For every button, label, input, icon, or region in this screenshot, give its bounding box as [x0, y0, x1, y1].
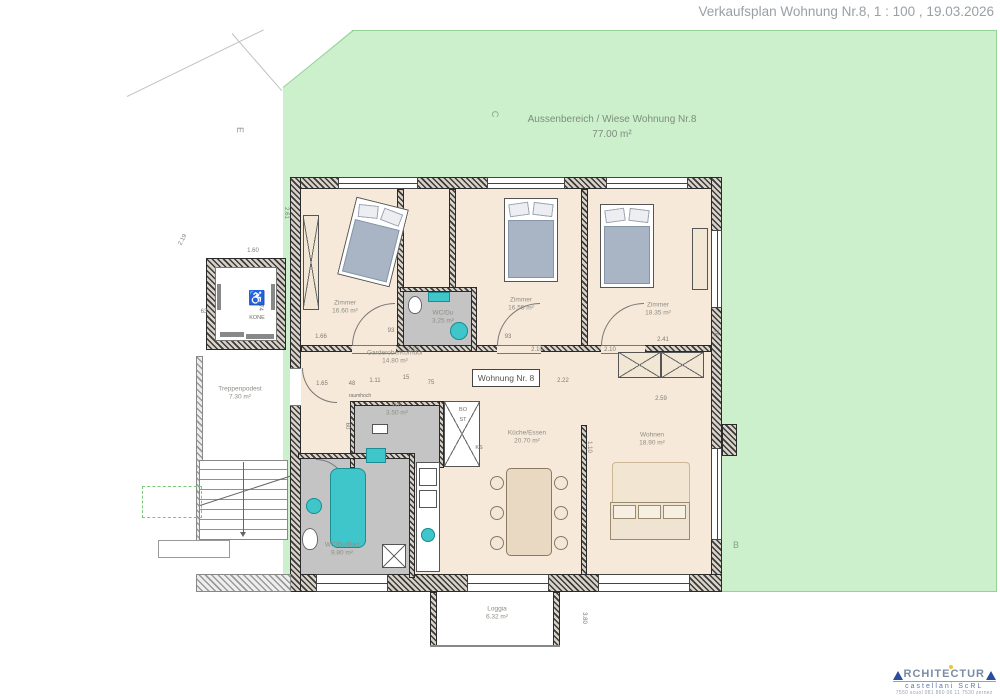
pillow	[628, 208, 649, 223]
entrance-step	[158, 540, 230, 558]
mattress	[342, 219, 400, 283]
pillow	[358, 204, 379, 219]
dimension-label: 2.10	[604, 347, 616, 353]
pillow	[604, 208, 626, 224]
stairs-arrowhead	[240, 532, 246, 537]
lift-rail	[271, 284, 275, 310]
window-bedroom3	[606, 177, 688, 189]
dimension-label: 1.10	[586, 441, 592, 453]
logo-triangle-icon	[986, 671, 996, 680]
section-marker: B	[733, 540, 739, 550]
room-label: Zimmer16.55 m²	[508, 297, 534, 314]
kitchen-sink	[421, 528, 435, 542]
boundary-dashed	[142, 486, 202, 518]
neighbor-roof-line	[127, 29, 264, 97]
loggia-edge	[430, 645, 560, 647]
floor-plan-canvas: Verkaufsplan Wohnung Nr.8, 1 : 100 , 19.…	[0, 0, 1000, 698]
logo-dot-icon	[949, 665, 953, 669]
annotation-label: ST	[459, 417, 466, 423]
dimension-label: 60	[344, 423, 350, 430]
room-label: Treppenpodest7.30 m²	[218, 386, 262, 403]
washing-machine	[382, 544, 406, 568]
wheelchair-icon: ♿	[248, 290, 265, 307]
dimension-label: 1.66	[315, 334, 327, 340]
wall-bedroom2-left	[449, 189, 456, 289]
wall-wc-right	[471, 287, 477, 352]
stairs-direction-line	[243, 462, 244, 532]
door-gap-entrance	[290, 368, 301, 406]
dimension-label: 75	[428, 380, 435, 386]
dimension-label: 3.80	[581, 612, 587, 624]
outdoor-area-label: Aussenbereich / Wiese Wohnung Nr.8 77.00…	[528, 112, 697, 142]
dimension-label: 2.10	[531, 347, 543, 353]
dimension-label: 15	[403, 375, 410, 381]
shelf-bedroom3	[692, 228, 708, 290]
dining-chair	[490, 506, 504, 520]
window-bedroom2	[487, 177, 565, 189]
wc-toilet	[408, 296, 422, 314]
logo-contact: 7550 scuol 081 860 06 11 7530 zernez	[893, 690, 997, 696]
garden-border-right	[996, 30, 997, 592]
apartment-number-box: Wohnung Nr. 8	[472, 369, 540, 387]
annotation-label: KONE	[249, 315, 265, 321]
lift-door-panel	[220, 332, 244, 337]
dimension-label: 2.41	[657, 337, 669, 343]
section-marker: C	[490, 111, 500, 118]
room-label: Loggia6.32 m²	[486, 606, 508, 623]
mattress	[604, 226, 650, 284]
window-bedroom3-east	[711, 230, 722, 308]
pillow	[532, 202, 553, 217]
dining-chair	[554, 506, 568, 520]
bath-sink	[306, 498, 322, 514]
room-label: WC/Du3.25 m²	[432, 310, 454, 327]
room-label: Wohnen18.90 m²	[639, 432, 665, 449]
loggia-wall-left	[430, 592, 437, 647]
wardrobe-bedroom1	[303, 215, 319, 310]
stove	[419, 468, 437, 486]
bed-bedroom2	[504, 198, 558, 282]
lift-cabin	[215, 267, 277, 341]
window-living-south	[598, 574, 690, 592]
dimension-label: 2.59	[655, 396, 667, 402]
room-label: WC/Du/Bad9.80 m²	[325, 542, 359, 559]
pillow	[508, 202, 530, 218]
logo-firm-name: castellani ScRL	[893, 681, 997, 690]
wardrobe-corridor	[618, 352, 661, 378]
dining-chair	[554, 536, 568, 550]
wardrobe-corridor	[661, 352, 704, 378]
dimension-label: 2.19	[178, 233, 189, 246]
dimension-label: 63	[201, 309, 208, 315]
sofa-cushion	[663, 505, 686, 519]
pillow	[380, 208, 403, 227]
dimension-label: 1.65	[316, 381, 328, 387]
dining-chair	[490, 536, 504, 550]
wall-pier-right	[722, 424, 737, 456]
logo-triangle-icon	[893, 671, 903, 680]
wk-basin	[366, 448, 386, 463]
dimension-label: 48	[349, 381, 356, 387]
sofa-cushion	[638, 505, 661, 519]
outdoor-area-name: Aussenbereich / Wiese Wohnung Nr.8	[528, 112, 697, 127]
garden-border-bottom	[722, 591, 997, 592]
sofa-cushion	[613, 505, 636, 519]
dimension-label: 2.10	[407, 347, 419, 353]
annotation-label: KS	[475, 445, 482, 451]
wk-shelf	[372, 424, 388, 434]
window-living-east	[711, 448, 722, 540]
wall-bath-right	[409, 453, 415, 578]
room-label: Zimmer16.60 m²	[332, 300, 358, 317]
loggia-door	[467, 574, 549, 592]
dining-table	[506, 468, 552, 556]
dimension-label: 93	[505, 334, 512, 340]
dimension-label: 2.61	[283, 207, 289, 219]
dimension-label: 76	[712, 330, 718, 337]
window-bedroom1	[338, 177, 418, 189]
entrance-wall	[196, 574, 291, 592]
wall-bedroom3-left	[581, 189, 588, 349]
annotation-label: BO	[459, 407, 467, 413]
sofa	[610, 502, 690, 540]
oven	[419, 490, 437, 508]
toilet	[302, 528, 318, 550]
room-label: Zimmer18.35 m²	[645, 302, 671, 319]
neighbor-roof-line	[232, 33, 283, 91]
dining-chair	[554, 476, 568, 490]
window-bath	[316, 574, 388, 592]
wc-cistern	[428, 292, 450, 302]
loggia-wall-right	[553, 592, 560, 647]
section-marker: E	[235, 127, 245, 133]
dimension-label: 1.11	[369, 378, 380, 384]
bathtub	[330, 468, 366, 548]
lift-rail	[217, 284, 221, 310]
plan-title: Verkaufsplan Wohnung Nr.8, 1 : 100 , 19.…	[699, 4, 994, 19]
mattress	[508, 220, 554, 278]
dimension-label: 1.60	[247, 248, 259, 254]
dining-chair	[490, 476, 504, 490]
architect-logo: RCHITECTUR castellani ScRL 7550 scuol 08…	[893, 669, 997, 696]
outdoor-area-size: 77.00 m²	[528, 127, 697, 142]
garden-border-top	[352, 30, 997, 31]
lift-door-panel	[246, 334, 274, 339]
dimension-label: 2.22	[557, 378, 569, 384]
dimension-label: 93	[388, 328, 395, 334]
bed-bedroom3	[600, 204, 654, 288]
annotation-label: raumhoch	[349, 393, 371, 399]
logo-wordmark: RCHITECTUR	[893, 669, 997, 680]
logo-word: RCHITECTUR	[904, 669, 986, 680]
room-label: WK3.50 m²	[386, 402, 408, 419]
room-label: Küche/Essen20.70 m²	[508, 430, 546, 447]
